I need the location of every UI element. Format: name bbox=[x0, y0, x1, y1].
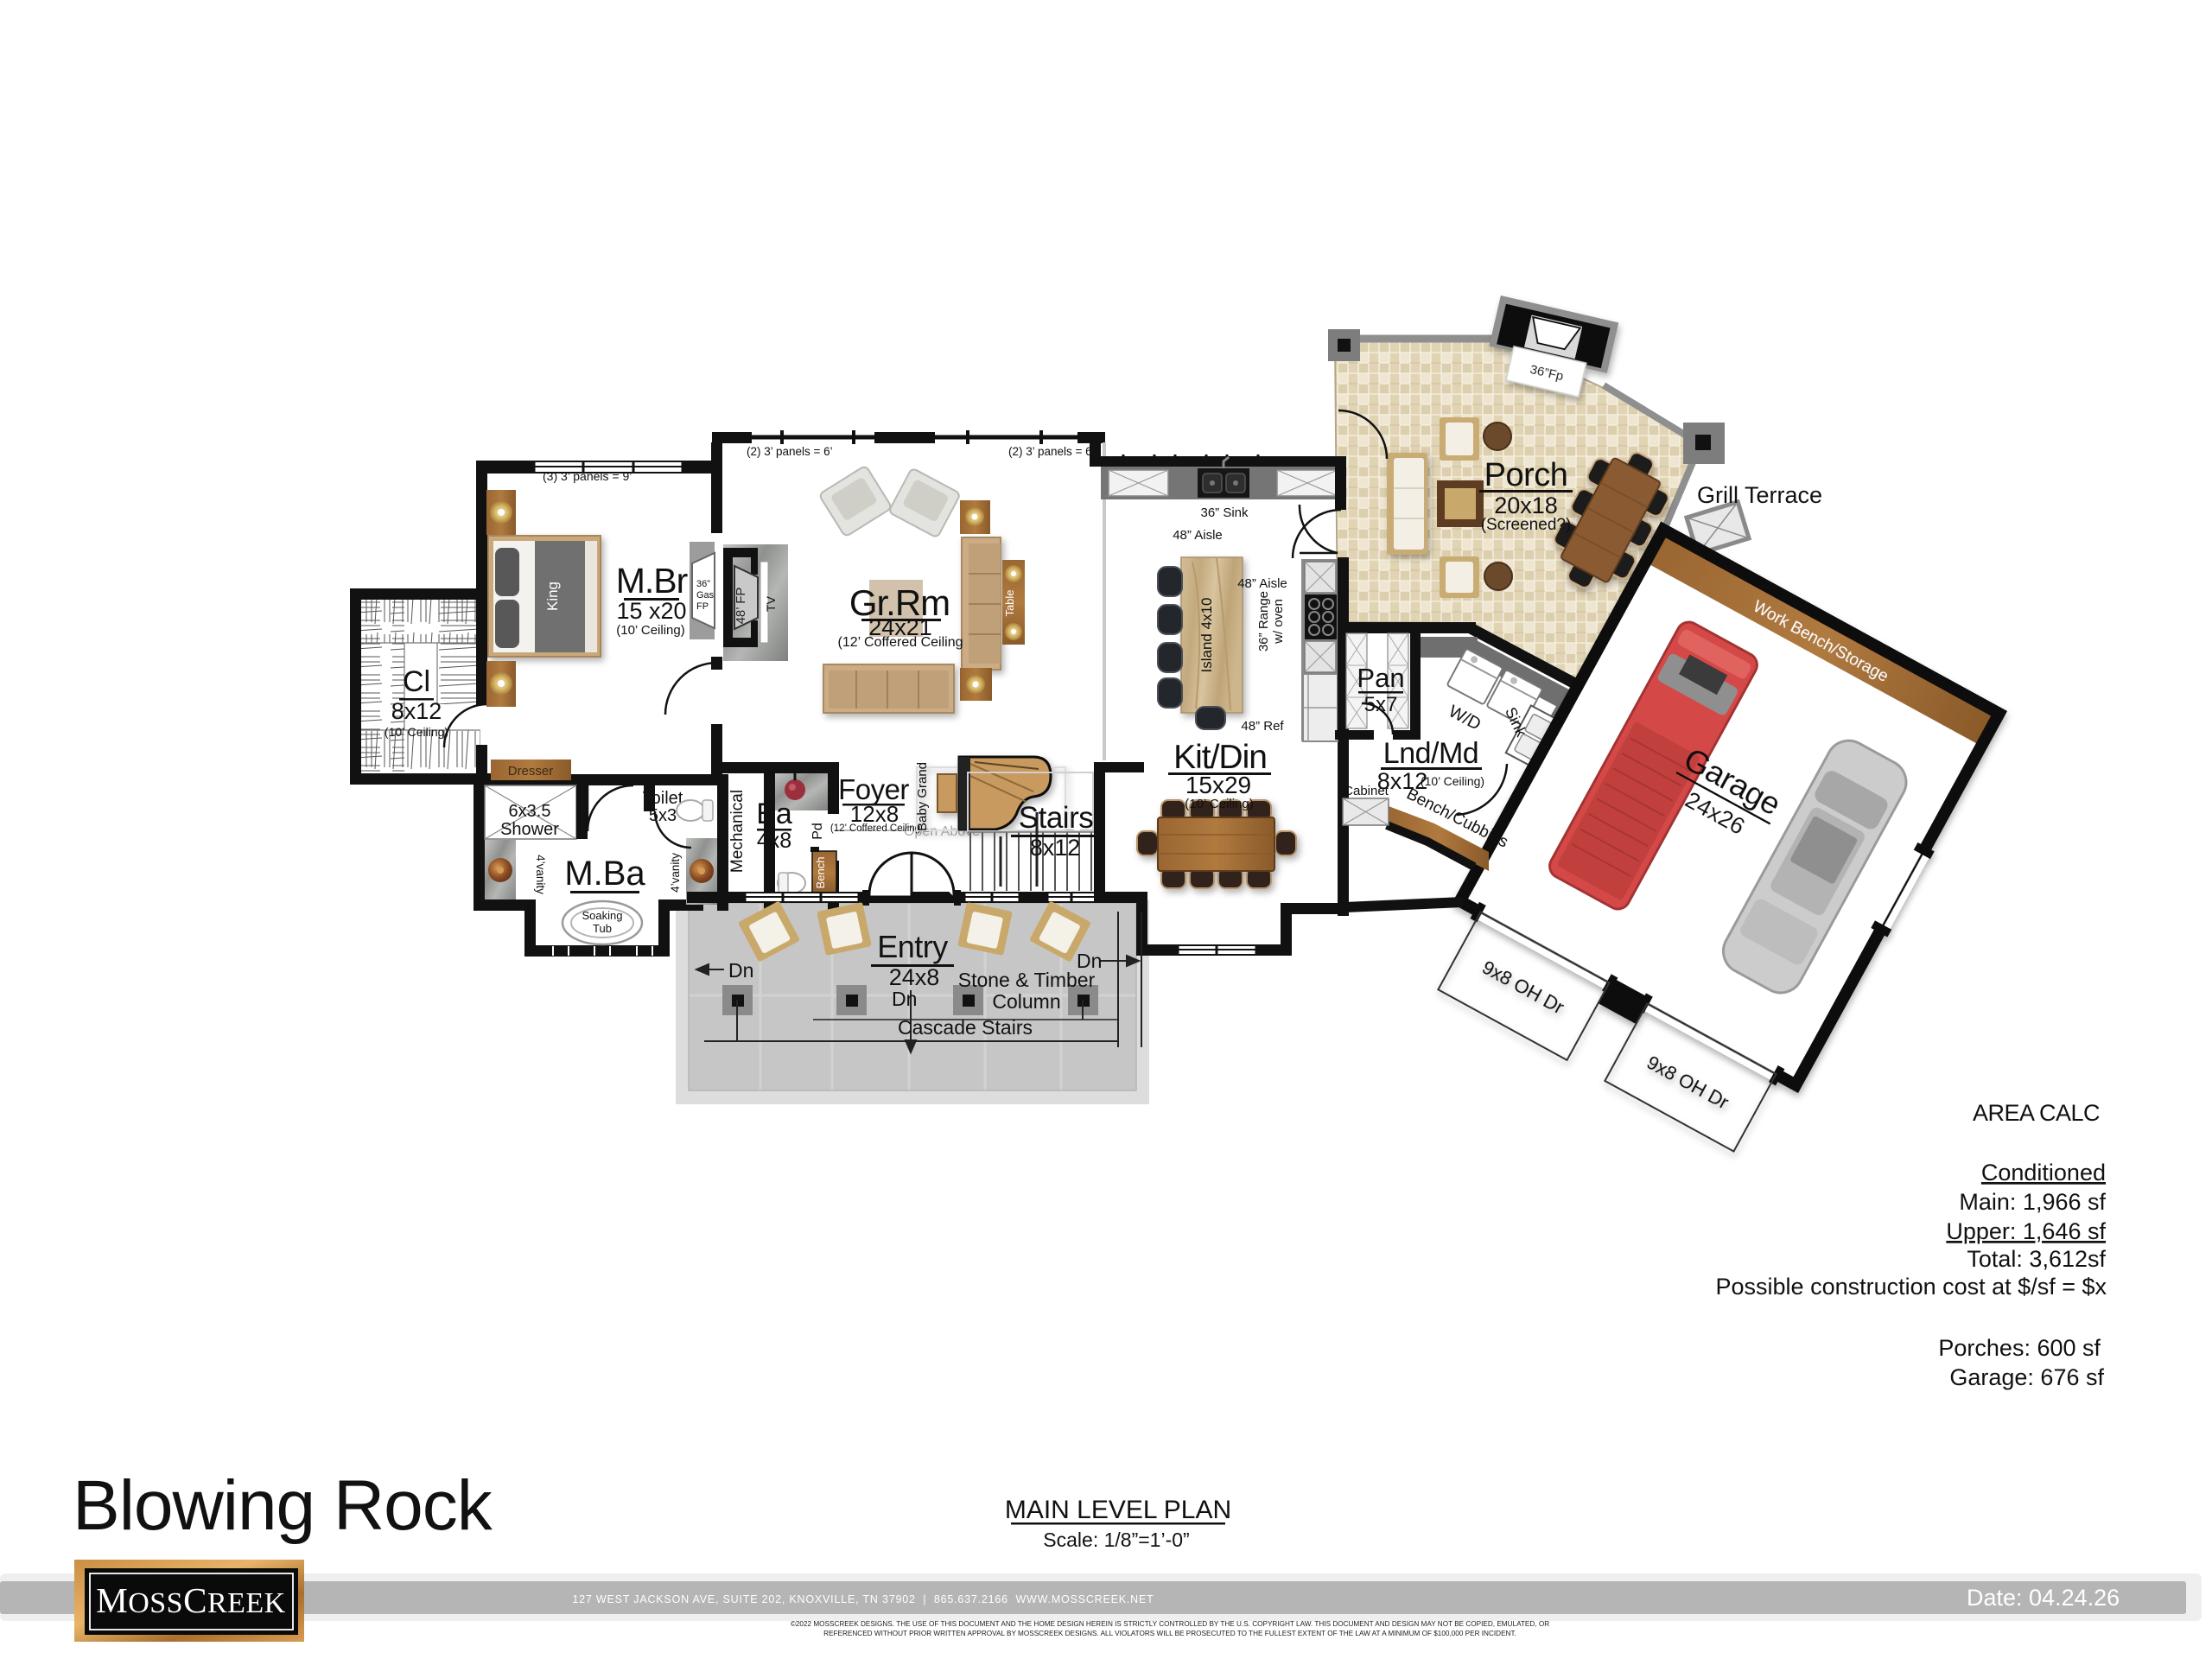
svg-text:Cabinet: Cabinet bbox=[1344, 784, 1389, 798]
svg-text:M.Br: M.Br bbox=[616, 561, 688, 601]
svg-text:Column: Column bbox=[992, 990, 1060, 1013]
svg-text:Cl: Cl bbox=[403, 665, 430, 698]
svg-text:(12’ Coffered Ceiling: (12’ Coffered Ceiling bbox=[830, 823, 920, 834]
svg-text:(10’ Ceiling): (10’ Ceiling) bbox=[1421, 774, 1484, 788]
svg-text:Grill Terrace: Grill Terrace bbox=[1697, 482, 1822, 508]
svg-text:127 WEST JACKSON AVE, SUITE 20: 127 WEST JACKSON AVE, SUITE 202, KNOXVIL… bbox=[572, 1593, 1154, 1605]
svg-text:Stone & Timber: Stone & Timber bbox=[958, 969, 1096, 991]
svg-text:4’vanity: 4’vanity bbox=[534, 855, 547, 894]
svg-text:Dn: Dn bbox=[728, 959, 753, 982]
svg-text:(Screened?): (Screened?) bbox=[1481, 516, 1572, 534]
svg-text:36” Range: 36” Range bbox=[1256, 591, 1271, 652]
svg-text:(2) 3’ panels = 6’: (2) 3’ panels = 6’ bbox=[747, 445, 833, 458]
svg-text:TV: TV bbox=[764, 595, 778, 612]
svg-text:Garage: 676 sf: Garage: 676 sf bbox=[1949, 1364, 2104, 1390]
svg-text:5x3: 5x3 bbox=[649, 806, 677, 825]
svg-text:Total: 3,612sf: Total: 3,612sf bbox=[1967, 1246, 2106, 1272]
svg-text:6x3.5: 6x3.5 bbox=[509, 802, 551, 821]
svg-text:8x12: 8x12 bbox=[391, 698, 442, 724]
svg-text:w/ oven: w/ oven bbox=[1271, 599, 1286, 645]
svg-text:Baby Grand: Baby Grand bbox=[915, 762, 930, 831]
svg-text:Date: 04.24.26: Date: 04.24.26 bbox=[1967, 1585, 2120, 1611]
svg-text:©2022 MOSSCREEK DESIGNS. THE U: ©2022 MOSSCREEK DESIGNS. THE USE OF THIS… bbox=[791, 1620, 1549, 1628]
svg-text:Scale: 1/8”=1’-0”: Scale: 1/8”=1’-0” bbox=[1043, 1529, 1189, 1551]
svg-text:Pd: Pd bbox=[810, 823, 825, 840]
svg-text:15x29: 15x29 bbox=[1185, 772, 1251, 798]
svg-text:Pan: Pan bbox=[1357, 663, 1404, 693]
svg-text:Main: 1,966 sf: Main: 1,966 sf bbox=[1959, 1189, 2106, 1215]
svg-text:Kit/Din: Kit/Din bbox=[1173, 739, 1267, 776]
svg-text:Shower: Shower bbox=[500, 820, 559, 839]
svg-text:Ba: Ba bbox=[756, 798, 792, 830]
svg-text:Cascade Stairs: Cascade Stairs bbox=[898, 1016, 1033, 1039]
svg-text:48’ FP: 48’ FP bbox=[734, 588, 748, 625]
svg-text:(12’ Coffered Ceiling: (12’ Coffered Ceiling bbox=[838, 635, 963, 650]
svg-text:Stairs: Stairs bbox=[1019, 801, 1093, 835]
svg-text:Bench: Bench bbox=[814, 857, 827, 889]
svg-text:20x18: 20x18 bbox=[1494, 493, 1558, 518]
svg-text:King: King bbox=[544, 582, 561, 611]
svg-text:4x8: 4x8 bbox=[757, 829, 791, 853]
svg-text:Possible construction cost at: Possible construction cost at $/sf = $x bbox=[1716, 1274, 2107, 1300]
svg-text:(10’ Ceiling): (10’ Ceiling) bbox=[385, 725, 448, 739]
svg-text:MAIN LEVEL PLAN: MAIN LEVEL PLAN bbox=[1005, 1496, 1231, 1524]
svg-text:REFERENCED WITHOUT PRIOR WRITT: REFERENCED WITHOUT PRIOR WRITTEN APPROVA… bbox=[823, 1630, 1516, 1637]
svg-text:FP: FP bbox=[696, 601, 709, 612]
svg-text:Tub: Tub bbox=[593, 922, 612, 935]
svg-text:Blowing Rock: Blowing Rock bbox=[73, 1466, 493, 1545]
svg-text:Conditioned: Conditioned bbox=[1981, 1160, 2106, 1185]
svg-text:Table: Table bbox=[1003, 589, 1016, 616]
svg-text:24x8: 24x8 bbox=[889, 964, 940, 990]
svg-text:(2) 3’ panels = 6’: (2) 3’ panels = 6’ bbox=[1008, 445, 1095, 458]
svg-text:4’vanity: 4’vanity bbox=[669, 853, 682, 893]
svg-text:48” Aisle: 48” Aisle bbox=[1173, 528, 1223, 543]
svg-text:36”: 36” bbox=[696, 579, 710, 589]
svg-text:Entry: Entry bbox=[877, 929, 948, 964]
svg-text:15 x20: 15 x20 bbox=[616, 598, 686, 624]
svg-text:Porch: Porch bbox=[1484, 457, 1568, 493]
svg-text:Dresser: Dresser bbox=[508, 764, 554, 779]
svg-text:36” Sink: 36” Sink bbox=[1200, 505, 1249, 520]
svg-text:(10’ Ceiling): (10’ Ceiling) bbox=[616, 623, 684, 638]
svg-text:(10’ Ceiling): (10’ Ceiling) bbox=[1185, 797, 1253, 811]
svg-text:Gas: Gas bbox=[696, 590, 715, 601]
svg-text:Island 4x10: Island 4x10 bbox=[1198, 598, 1215, 673]
svg-text:AREA CALC: AREA CALC bbox=[1973, 1100, 2100, 1126]
svg-text:Porches: 600 sf: Porches: 600 sf bbox=[1938, 1335, 2101, 1361]
svg-text:8x12: 8x12 bbox=[1030, 835, 1081, 861]
svg-text:Dn: Dn bbox=[892, 988, 917, 1010]
svg-text:(3) 3’ panels = 9’: (3) 3’ panels = 9’ bbox=[543, 469, 632, 483]
svg-text:Upper: 1,646 sf: Upper: 1,646 sf bbox=[1946, 1218, 2106, 1244]
svg-text:Toilet: Toilet bbox=[643, 789, 683, 808]
svg-text:48” Ref: 48” Ref bbox=[1241, 719, 1284, 734]
svg-text:Soaking: Soaking bbox=[582, 909, 623, 922]
svg-text:Mechanical: Mechanical bbox=[728, 790, 747, 873]
svg-text:48” Aisle: 48” Aisle bbox=[1237, 576, 1287, 591]
svg-text:Lnd/Md: Lnd/Md bbox=[1383, 737, 1478, 770]
svg-text:M.Ba: M.Ba bbox=[564, 855, 645, 893]
